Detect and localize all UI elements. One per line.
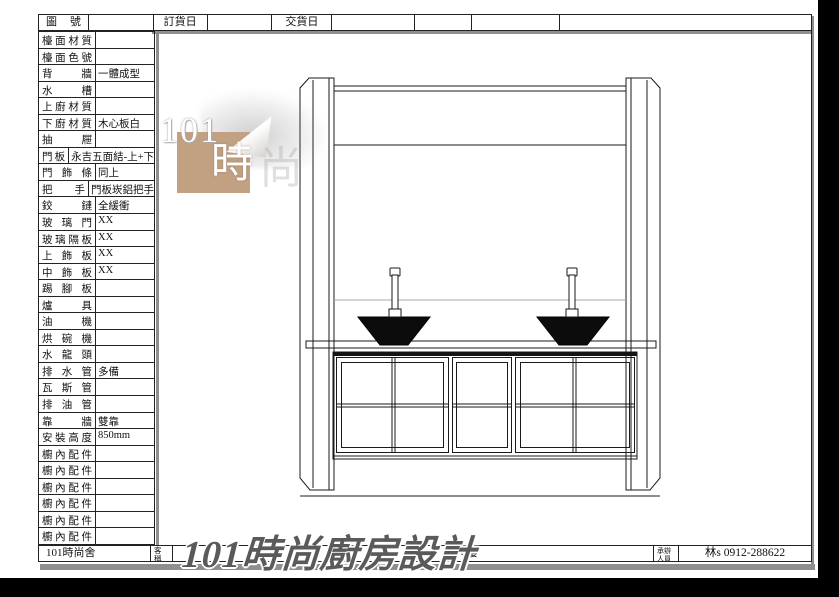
spec-value xyxy=(96,131,154,147)
spec-row: 檯面色號 xyxy=(39,49,154,66)
header-blank-2 xyxy=(472,15,560,30)
spec-row: 門板永吉五面結-上+下 xyxy=(39,148,154,165)
spec-value: 雙靠 xyxy=(96,413,154,429)
spec-value xyxy=(96,280,154,296)
spec-value xyxy=(96,82,154,98)
spec-value: 850mm xyxy=(96,429,154,445)
spec-label: 檯面材質 xyxy=(39,32,96,48)
spec-value: XX xyxy=(96,231,154,247)
spec-value xyxy=(96,32,154,48)
spec-row: 上廚材質 xyxy=(39,98,154,115)
spec-value xyxy=(96,297,154,313)
spec-value xyxy=(96,396,154,412)
spec-value: 永吉五面結-上+下 xyxy=(69,148,154,164)
spec-value xyxy=(96,495,154,511)
spec-value xyxy=(96,98,154,114)
spec-row: 靠牆雙靠 xyxy=(39,413,154,430)
spec-label: 烘碗機 xyxy=(39,330,96,346)
spec-row: 門飾條同上 xyxy=(39,164,154,181)
spec-label: 爐具 xyxy=(39,297,96,313)
spec-value xyxy=(96,479,154,495)
spec-row: 下廚材質木心板白 xyxy=(39,115,154,132)
spec-label: 上廚材質 xyxy=(39,98,96,114)
spec-value: 全緩衝 xyxy=(96,197,154,213)
handler-label: 承辦人員 xyxy=(654,546,679,561)
handler-contact: 林s 0912-288622 xyxy=(679,546,811,561)
spec-label: 鉸鏈 xyxy=(39,197,96,213)
spec-row: 油機 xyxy=(39,313,154,330)
spec-label: 櫥內配件 xyxy=(39,446,96,462)
spec-row: 瓦斯管 xyxy=(39,379,154,396)
spec-row: 排水管多備 xyxy=(39,363,154,380)
spec-row: 櫥內配件 xyxy=(39,479,154,496)
spec-row: 玻璃隔板XX xyxy=(39,231,154,248)
spec-row: 抽屜 xyxy=(39,131,154,148)
spec-label: 安裝高度 xyxy=(39,429,96,445)
stamp-ghost-character: 尚 xyxy=(259,147,303,191)
client-name-label: 客稱 xyxy=(151,546,173,561)
spec-value: 多備 xyxy=(96,363,154,379)
spec-row: 櫥內配件 xyxy=(39,446,154,463)
header-blank-3 xyxy=(560,15,811,30)
spec-value: 木心板白 xyxy=(96,115,154,131)
spec-row: 櫥內配件 xyxy=(39,495,154,512)
drawing-number-label: 圖號 xyxy=(39,15,89,30)
brand-watermark: 101時尚廚房設計 xyxy=(180,533,477,577)
spec-row: 檯面材質 xyxy=(39,32,154,49)
spec-value: XX xyxy=(96,264,154,280)
spec-row: 中飾板XX xyxy=(39,264,154,281)
spec-label: 門飾條 xyxy=(39,164,96,180)
spec-value xyxy=(96,512,154,528)
company-name: 101時尚舍 xyxy=(39,546,151,561)
spec-label: 把手 xyxy=(39,181,89,197)
delivery-date-value xyxy=(332,15,415,30)
spec-label: 上飾板 xyxy=(39,247,96,263)
spec-label: 玻璃隔板 xyxy=(39,231,96,247)
spec-label: 抽屜 xyxy=(39,131,96,147)
spec-label: 櫥內配件 xyxy=(39,512,96,528)
spec-label: 水槽 xyxy=(39,82,96,98)
spec-row: 把手門板崁鋁把手 xyxy=(39,181,154,198)
spec-label: 排油管 xyxy=(39,396,96,412)
spec-label: 櫥內配件 xyxy=(39,495,96,511)
delivery-date-label: 交貨日 xyxy=(272,15,332,30)
spec-value xyxy=(96,49,154,65)
spec-value xyxy=(96,528,154,544)
spec-value xyxy=(96,446,154,462)
spec-row: 櫥內配件 xyxy=(39,512,154,529)
spec-value xyxy=(96,313,154,329)
spec-label: 檯面色號 xyxy=(39,49,96,65)
spec-row: 上飾板XX xyxy=(39,247,154,264)
header-blank-1 xyxy=(415,15,472,30)
header-row: 圖號訂貨日交貨日 xyxy=(38,14,812,31)
spec-label: 下廚材質 xyxy=(39,115,96,131)
spec-value: XX xyxy=(96,214,154,230)
spec-label: 油機 xyxy=(39,313,96,329)
spec-label: 櫥內配件 xyxy=(39,462,96,478)
spec-row: 背牆一體成型 xyxy=(39,65,154,82)
spec-row: 踢腳板 xyxy=(39,280,154,297)
order-date-value xyxy=(208,15,273,30)
spec-value xyxy=(96,462,154,478)
spec-row: 排油管 xyxy=(39,396,154,413)
spec-label: 水龍頭 xyxy=(39,346,96,362)
spec-label: 踢腳板 xyxy=(39,280,96,296)
spec-row: 櫥內配件 xyxy=(39,528,154,544)
order-date-label: 訂貨日 xyxy=(154,15,208,30)
spec-value: 同上 xyxy=(96,164,154,180)
spec-label: 靠牆 xyxy=(39,413,96,429)
spec-row: 水槽 xyxy=(39,82,154,99)
spec-label: 門板 xyxy=(39,148,69,164)
spec-row: 鉸鏈全緩衝 xyxy=(39,197,154,214)
spec-value: 門板崁鋁把手 xyxy=(89,181,154,197)
spec-value: 一體成型 xyxy=(96,65,154,81)
spec-label: 玻璃門 xyxy=(39,214,96,230)
spec-table: 檯面材質檯面色號背牆一體成型水槽上廚材質下廚材質木心板白抽屜門板永吉五面結-上+… xyxy=(38,31,155,545)
spec-label: 櫥內配件 xyxy=(39,528,96,544)
spec-row: 烘碗機 xyxy=(39,330,154,347)
spec-label: 背牆 xyxy=(39,65,96,81)
spec-label: 中飾板 xyxy=(39,264,96,280)
stamp-character: 時 xyxy=(211,142,253,186)
spec-row: 爐具 xyxy=(39,297,154,314)
spec-row: 安裝高度850mm xyxy=(39,429,154,446)
spec-value xyxy=(96,330,154,346)
spec-label: 瓦斯管 xyxy=(39,379,96,395)
client-name-label-text: 客稱 xyxy=(154,547,164,561)
spec-value xyxy=(96,379,154,395)
spec-label: 排水管 xyxy=(39,363,96,379)
spec-row: 水龍頭 xyxy=(39,346,154,363)
spec-value xyxy=(96,346,154,362)
spec-row: 玻璃門XX xyxy=(39,214,154,231)
spec-row: 櫥內配件 xyxy=(39,462,154,479)
drawing-number-value xyxy=(89,15,154,30)
handler-label-text: 承辦人員 xyxy=(657,547,673,561)
spec-label: 櫥內配件 xyxy=(39,479,96,495)
cad-sheet-canvas: { "header": { "cells": ["圖號", "", "訂貨日",… xyxy=(0,0,839,597)
spec-value: XX xyxy=(96,247,154,263)
